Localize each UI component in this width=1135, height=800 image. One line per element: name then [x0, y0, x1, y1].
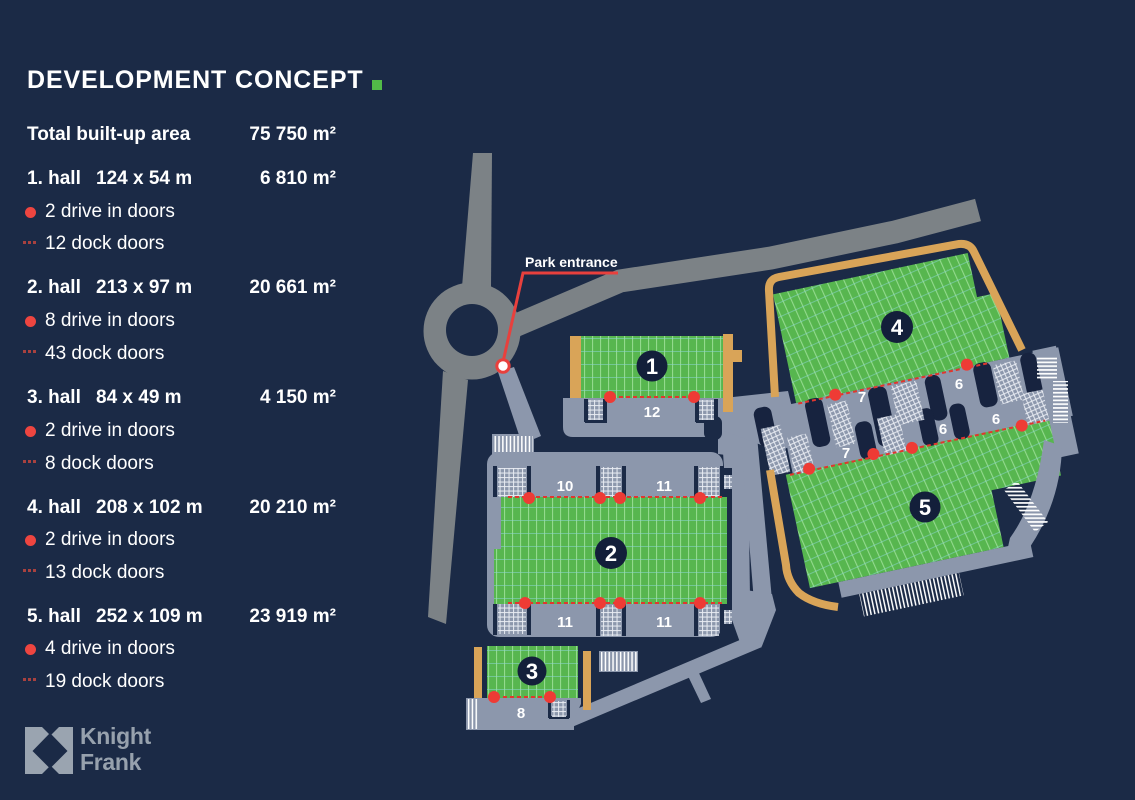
- svg-text:6: 6: [939, 421, 947, 438]
- svg-text:7: 7: [858, 389, 866, 406]
- svg-text:4: 4: [891, 315, 904, 340]
- svg-text:8: 8: [517, 705, 525, 722]
- svg-text:2: 2: [605, 541, 617, 566]
- svg-text:1: 1: [646, 354, 658, 379]
- svg-text:7: 7: [842, 445, 850, 462]
- svg-text:11: 11: [557, 614, 573, 631]
- svg-text:11: 11: [656, 478, 672, 495]
- svg-text:11: 11: [656, 614, 672, 631]
- svg-text:12: 12: [644, 404, 661, 421]
- svg-text:5: 5: [919, 495, 931, 520]
- svg-text:3: 3: [526, 659, 538, 684]
- svg-text:10: 10: [557, 478, 574, 495]
- svg-text:6: 6: [992, 411, 1000, 428]
- svg-text:Park entrance: Park entrance: [525, 254, 618, 270]
- svg-text:6: 6: [955, 376, 963, 393]
